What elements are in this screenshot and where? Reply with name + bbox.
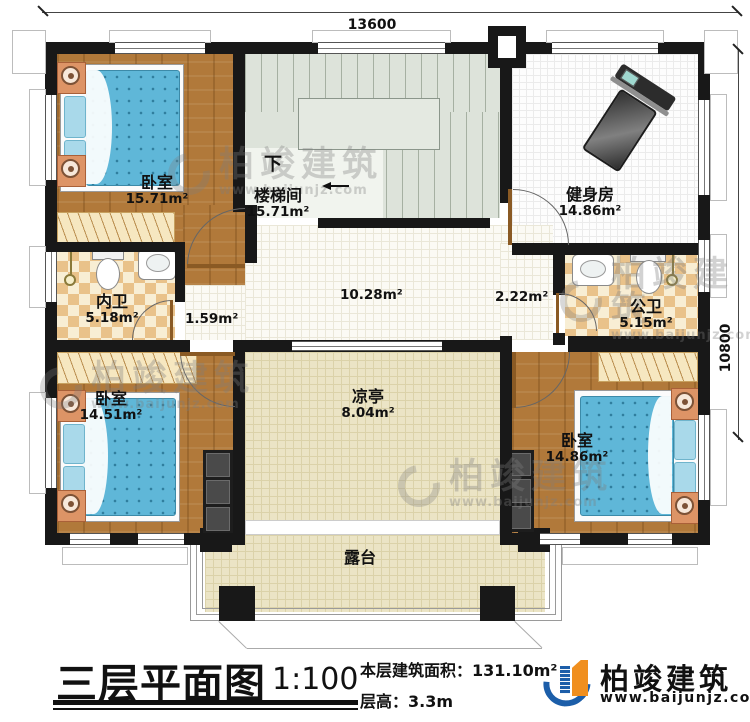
room-name: 卧室 bbox=[115, 174, 199, 192]
room-name: 公卫 bbox=[606, 298, 686, 316]
brand-website: www.baijunjz.com bbox=[600, 690, 750, 706]
terrace-post-left bbox=[219, 586, 255, 621]
stair-direction-arrow-icon bbox=[322, 182, 331, 190]
corner-sill-top-left bbox=[12, 30, 46, 74]
dimension-tick bbox=[37, 5, 48, 16]
room-label-terrace: 露台 bbox=[320, 549, 400, 567]
room-area: 14.86m² bbox=[537, 450, 617, 465]
pillow bbox=[64, 96, 86, 138]
lamp-icon bbox=[61, 66, 80, 85]
room-name: 卧室 bbox=[71, 390, 151, 408]
room-area: 15.71m² bbox=[115, 192, 199, 207]
entry-outline-bottom bbox=[247, 648, 542, 649]
window-sill bbox=[710, 94, 727, 201]
sink-basin bbox=[146, 254, 170, 272]
window-sill bbox=[29, 246, 46, 308]
hall-area-label: 10.28m² bbox=[340, 287, 403, 303]
room-label-gym: 健身房 14.86m² bbox=[548, 186, 632, 218]
wardrobe-bottom-right bbox=[598, 352, 698, 382]
window-sill bbox=[710, 234, 727, 298]
stair-mid-landing bbox=[298, 98, 440, 150]
wall-bath-private-right bbox=[175, 242, 185, 302]
corner-sill-top-right bbox=[704, 30, 738, 74]
room-name: 露台 bbox=[320, 549, 400, 567]
terrace-post-right bbox=[480, 586, 515, 621]
floor-area-label: 本层建筑面积： bbox=[360, 661, 472, 680]
vestibule-area-label: 2.22m² bbox=[495, 289, 548, 305]
wall-bedroom-br-top bbox=[568, 336, 710, 352]
window bbox=[115, 42, 205, 54]
window bbox=[698, 415, 710, 500]
window bbox=[45, 398, 57, 488]
room-label-bedroom-bottom-right: 卧室 14.86m² bbox=[537, 432, 617, 464]
pavilion-window bbox=[292, 341, 442, 351]
door-leaf-bedroom-br bbox=[512, 352, 516, 408]
dimension-line-top bbox=[42, 12, 738, 13]
title-underline-thin bbox=[53, 708, 358, 710]
dimension-tick bbox=[731, 5, 742, 16]
window-sill bbox=[29, 392, 46, 494]
window bbox=[70, 533, 110, 545]
room-area: 14.51m² bbox=[71, 408, 151, 423]
dimension-top-value: 13600 bbox=[337, 17, 407, 33]
floor-area-line: 本层建筑面积：131.10m² bbox=[360, 657, 557, 681]
floor-height-value: 3.3m bbox=[408, 692, 453, 711]
door-leaf-bath-private bbox=[170, 300, 173, 340]
lamp-icon bbox=[61, 494, 80, 513]
stair-direction-arrow-line bbox=[331, 185, 349, 187]
room-label-pavilion: 凉亭 8.04m² bbox=[308, 388, 428, 420]
room-name: 凉亭 bbox=[308, 388, 428, 406]
floor-height-label: 层高： bbox=[360, 692, 408, 711]
wall-bedroom-bl-top bbox=[45, 340, 190, 352]
room-label-bedroom-bottom-left: 卧室 14.51m² bbox=[71, 390, 151, 422]
wall-pavilion-right bbox=[500, 336, 512, 545]
room-label-bedroom-top-left: 卧室 15.71m² bbox=[115, 174, 199, 206]
room-name: 楼梯间 bbox=[238, 187, 318, 205]
wardrobe-bottom-left bbox=[57, 352, 197, 384]
door-leaf-gym bbox=[508, 189, 512, 245]
lamp-icon bbox=[61, 159, 80, 178]
lamp-icon bbox=[675, 392, 694, 411]
door-leaf-bedroom-bl bbox=[180, 352, 235, 356]
window-sill bbox=[62, 547, 188, 565]
window bbox=[318, 42, 445, 54]
room-label-bath-public: 公卫 5.15m² bbox=[606, 298, 686, 330]
corridor-area-label: 1.59m² bbox=[185, 311, 238, 327]
plan-scale: 1:100 bbox=[272, 662, 358, 697]
shower-knob bbox=[64, 274, 76, 286]
window-sill bbox=[562, 547, 698, 565]
room-name: 卧室 bbox=[537, 432, 617, 450]
floor-plan-canvas: 柏竣建筑 www.baijunjz.com 柏竣建筑 www.baijunjz.… bbox=[0, 0, 750, 722]
room-area: 5.18m² bbox=[72, 311, 152, 326]
room-area: 15.71m² bbox=[238, 205, 318, 220]
wall-bath-private-top bbox=[45, 242, 183, 252]
room-area: 14.86m² bbox=[548, 204, 632, 219]
brand-logo-building-blue bbox=[560, 666, 570, 694]
title-underline-thick bbox=[53, 700, 358, 705]
window-sill bbox=[710, 409, 727, 506]
door-leaf-suite bbox=[187, 264, 245, 268]
window bbox=[45, 95, 57, 180]
window bbox=[628, 533, 672, 545]
stair-down-label: 下 bbox=[264, 150, 282, 176]
window bbox=[698, 100, 710, 195]
dimension-right-value: 10800 bbox=[718, 318, 734, 378]
lamp-icon bbox=[675, 496, 694, 515]
toilet-bowl bbox=[636, 260, 662, 294]
window bbox=[698, 240, 710, 292]
wall-bath-public-corner bbox=[553, 333, 565, 345]
window bbox=[552, 42, 658, 54]
window-sill bbox=[29, 89, 46, 186]
pillow bbox=[63, 424, 85, 464]
wall-bath-public-left bbox=[553, 245, 565, 295]
room-label-bath-private: 内卫 5.18m² bbox=[72, 293, 152, 325]
tv-cabinet bbox=[203, 450, 233, 534]
shower-knob bbox=[666, 274, 678, 286]
room-label-stairwell: 楼梯间 15.71m² bbox=[238, 187, 318, 219]
entry-outline-right bbox=[514, 621, 542, 648]
toilet-bowl bbox=[96, 258, 120, 290]
pavilion-step bbox=[245, 520, 500, 535]
floor-pavilion bbox=[245, 352, 500, 520]
window bbox=[45, 252, 57, 302]
room-name: 健身房 bbox=[548, 186, 632, 204]
dimension-line-right bbox=[738, 50, 739, 440]
room-area: 8.04m² bbox=[308, 406, 428, 421]
window bbox=[138, 533, 184, 545]
entry-outline-left bbox=[218, 621, 247, 649]
sheet-bottom-right bbox=[648, 396, 672, 514]
shower-rod bbox=[672, 252, 674, 276]
door-leaf-bath-public bbox=[556, 293, 559, 333]
window bbox=[540, 533, 580, 545]
wardrobe-top-left bbox=[57, 212, 175, 245]
shower-rod bbox=[70, 252, 72, 276]
floor-height-line: 层高：3.3m bbox=[360, 688, 453, 712]
wall-stair-bottom bbox=[318, 218, 490, 228]
sink-basin bbox=[580, 260, 606, 278]
pillow bbox=[674, 420, 696, 460]
room-area: 5.15m² bbox=[606, 316, 686, 331]
chimney bbox=[488, 26, 526, 68]
room-name: 内卫 bbox=[72, 293, 152, 311]
